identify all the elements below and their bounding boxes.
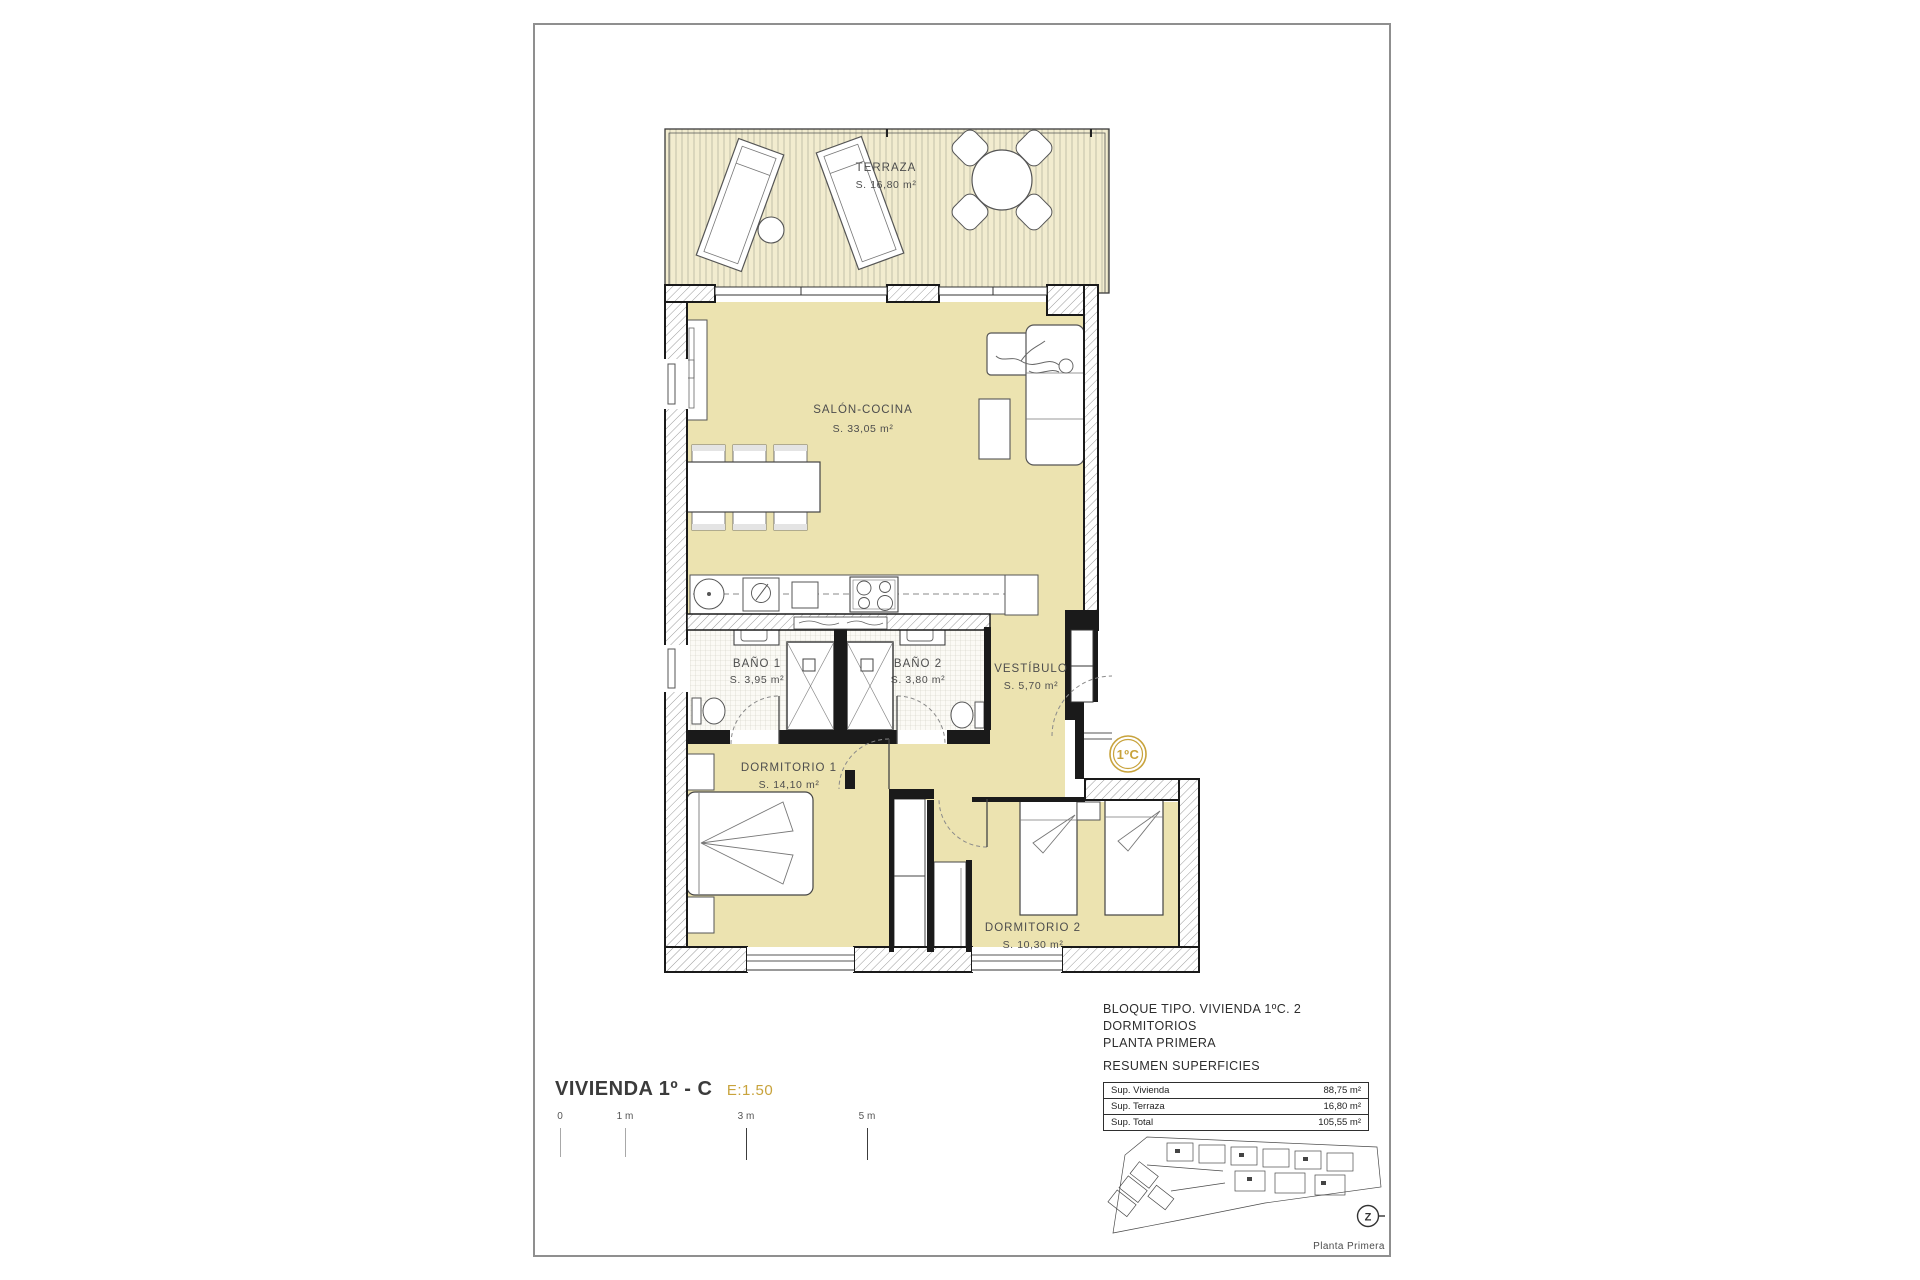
bano1-area-label: S. 3,95 m² <box>730 674 784 686</box>
row-value: 105,55 m² <box>1318 1117 1361 1128</box>
washer-icon <box>694 579 724 609</box>
row-label: Sup. Total <box>1111 1117 1153 1128</box>
table-row: Sup. Total 105,55 m² <box>1104 1115 1368 1130</box>
page: { "plan": { "unit_badge": "1ºC", "rooms"… <box>0 0 1920 1280</box>
salon-label: SALÓN-COCINA <box>813 403 913 416</box>
terraza-area <box>665 127 1109 293</box>
shower2-icon <box>847 642 893 730</box>
kitchen-counter <box>690 575 1038 615</box>
bano2-area-label: S. 3,80 m² <box>891 674 945 686</box>
dormitorio1-label: DORMITORIO 1 <box>741 762 837 774</box>
entry-threshold <box>1084 733 1112 739</box>
nightstand-icon <box>1077 802 1100 820</box>
row-label: Sup. Vivienda <box>1111 1085 1169 1096</box>
drawing-sheet: TERRAZA S. 16,80 m² SALÓN-COCINA S. 33,0… <box>533 23 1391 1257</box>
summary-heading-2: PLANTA PRIMERA <box>1103 1035 1385 1052</box>
summary-box: BLOQUE TIPO. VIVIENDA 1ºC. 2 DORMITORIOS… <box>1103 1001 1385 1131</box>
vestibulo-label: VESTÍBULO <box>994 662 1068 675</box>
key-plan-caption: Planta Primera <box>1279 1241 1419 1252</box>
svg-text:1ºC: 1ºC <box>1117 747 1140 762</box>
scale-tick <box>625 1128 626 1157</box>
row-value: 16,80 m² <box>1324 1101 1362 1112</box>
unit-badge: 1ºC <box>1110 736 1146 772</box>
key-plan <box>1108 1137 1381 1233</box>
row-label: Sup. Terraza <box>1111 1101 1165 1112</box>
bath2-toilet-icon <box>951 702 984 728</box>
title-block: VIVIENDA 1º - C E:1.50 <box>555 1078 773 1101</box>
single-bed-icon <box>1105 795 1163 915</box>
terraza-label: TERRAZA <box>856 162 917 174</box>
dormitorio2-label: DORMITORIO 2 <box>985 922 1081 934</box>
dining-set-icon <box>687 445 820 530</box>
scale-label-2: 3 m <box>738 1111 755 1122</box>
bano1-label: BAÑO 1 <box>733 657 781 670</box>
scale-tick <box>746 1128 747 1160</box>
wall-niche <box>794 617 887 629</box>
fridge-icon <box>1005 575 1038 615</box>
summary-heading-3: RESUMEN SUPERFICIES <box>1103 1058 1385 1075</box>
stove-icon <box>850 577 898 612</box>
dishwasher-icon <box>792 582 818 608</box>
coffee-table-icon <box>979 399 1010 459</box>
svg-text:Z: Z <box>1365 1212 1372 1224</box>
dormitorio2-area-label: S. 10,30 m² <box>1003 939 1064 951</box>
scale-tick <box>867 1128 868 1160</box>
sink-icon <box>743 578 779 611</box>
summary-heading-1: BLOQUE TIPO. VIVIENDA 1ºC. 2 DORMITORIOS <box>1103 1001 1385 1035</box>
scale-label-3: 5 m <box>859 1111 876 1122</box>
row-value: 88,75 m² <box>1324 1085 1362 1096</box>
scale-label-0: 0 <box>557 1111 563 1122</box>
bano2-label: BAÑO 2 <box>894 657 942 670</box>
shower1-icon <box>787 642 834 730</box>
table-row: Sup. Terraza 16,80 m² <box>1104 1099 1368 1115</box>
page-title: VIVIENDA 1º - C <box>555 1078 712 1100</box>
vestibule-closet <box>1071 630 1093 702</box>
terraza-area-label: S. 16,80 m² <box>856 179 917 191</box>
drawing-scale: E:1.50 <box>727 1082 773 1099</box>
side-table-icon <box>758 217 784 243</box>
salon-area-label: S. 33,05 m² <box>833 423 894 435</box>
bath1-toilet-icon <box>692 698 725 724</box>
scale-label-1: 1 m <box>617 1111 634 1122</box>
single-bed-icon <box>1020 800 1077 915</box>
table-row: Sup. Vivienda 88,75 m² <box>1104 1083 1368 1099</box>
scale-tick <box>560 1128 561 1157</box>
dormitorio1-area-label: S. 14,10 m² <box>759 779 820 791</box>
surface-table: Sup. Vivienda 88,75 m² Sup. Terraza 16,8… <box>1103 1082 1369 1131</box>
north-icon: Z <box>1358 1206 1386 1227</box>
vestibulo-area-label: S. 5,70 m² <box>1004 680 1058 692</box>
